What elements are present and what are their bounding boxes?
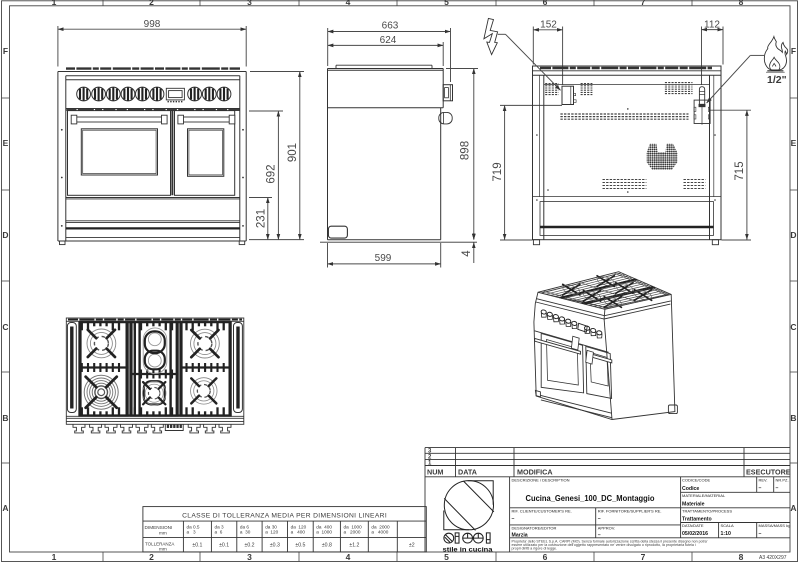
svg-text:B: B: [790, 413, 796, 423]
svg-text:1/2": 1/2": [767, 74, 787, 86]
svg-text:599: 599: [375, 253, 392, 264]
svg-text:898: 898: [459, 141, 471, 160]
svg-text:DATA/DATE: DATA/DATE: [682, 523, 704, 528]
svg-text:4: 4: [461, 250, 473, 257]
svg-text:±0.5: ±0.5: [295, 543, 305, 549]
svg-text:4: 4: [346, 0, 351, 7]
svg-text:–: –: [512, 516, 515, 522]
svg-text:REV.: REV.: [759, 477, 768, 482]
svg-text:a 6: a 6: [215, 530, 223, 535]
svg-text:3: 3: [247, 552, 252, 562]
svg-text:152: 152: [540, 20, 557, 31]
svg-text:NR.PZ.: NR.PZ.: [776, 477, 789, 482]
svg-text:Trattamento: Trattamento: [682, 516, 712, 522]
svg-text:–: –: [598, 532, 601, 538]
svg-text:stile in cucina: stile in cucina: [443, 547, 494, 554]
svg-text:MODIFICA: MODIFICA: [517, 468, 553, 477]
svg-text:112: 112: [704, 20, 720, 31]
svg-text:MATERIALE/MATERIAL: MATERIALE/MATERIAL: [682, 493, 726, 498]
svg-text:901: 901: [287, 143, 299, 162]
svg-text:a 2000: a 2000: [344, 530, 361, 535]
svg-text:715: 715: [734, 161, 746, 180]
svg-text:DATA: DATA: [458, 468, 477, 477]
svg-text:231: 231: [256, 209, 268, 228]
svg-text:±0.2: ±0.2: [244, 543, 254, 549]
svg-text:SCALA: SCALA: [721, 523, 734, 528]
svg-text:Materiale: Materiale: [682, 501, 705, 507]
svg-text:Codice: Codice: [682, 486, 699, 492]
svg-text:±2: ±2: [409, 543, 415, 549]
svg-text:NUM: NUM: [427, 468, 443, 477]
svg-text:663: 663: [382, 21, 399, 32]
svg-text:–: –: [598, 516, 601, 522]
svg-text:–: –: [776, 485, 779, 491]
svg-text:RIF. FORNITORE/SUPPLIER'S RE.: RIF. FORNITORE/SUPPLIER'S RE.: [598, 508, 662, 513]
svg-text:mm: mm: [159, 530, 167, 535]
svg-text:DESCRIZIONE / DESCRIPTION: DESCRIZIONE / DESCRIPTION: [512, 477, 570, 482]
svg-text:C: C: [2, 322, 8, 332]
svg-text:F: F: [791, 46, 796, 56]
svg-text:1: 1: [52, 552, 57, 562]
svg-text:±0.1: ±0.1: [219, 543, 229, 549]
svg-text:TRATTAMENTO/PROCESS: TRATTAMENTO/PROCESS: [682, 508, 732, 513]
svg-text:a 1000: a 1000: [316, 530, 332, 535]
svg-text:±0.1: ±0.1: [192, 543, 202, 549]
svg-text:2: 2: [149, 552, 154, 562]
svg-text:8: 8: [739, 0, 744, 7]
svg-text:Cucina_Genesi_100_DC_Montaggio: Cucina_Genesi_100_DC_Montaggio: [526, 493, 655, 503]
svg-text:Marzia: Marzia: [512, 532, 528, 538]
svg-text:APPROV.: APPROV.: [598, 525, 615, 530]
svg-text:A: A: [2, 503, 8, 513]
svg-text:624: 624: [380, 35, 397, 46]
svg-text:5: 5: [444, 0, 449, 7]
svg-text:6: 6: [543, 0, 548, 7]
svg-text:7: 7: [641, 552, 646, 562]
svg-text:a 30: a 30: [240, 530, 251, 535]
svg-text:a 4000: a 4000: [371, 530, 388, 535]
svg-text:998: 998: [144, 19, 161, 30]
svg-text:±1.2: ±1.2: [349, 543, 359, 549]
svg-text:05/02/2016: 05/02/2016: [682, 531, 708, 537]
svg-text:DESIGNATORE/EDITOR: DESIGNATORE/EDITOR: [512, 525, 557, 530]
svg-text:D: D: [790, 230, 796, 240]
svg-text:2: 2: [149, 0, 154, 7]
svg-text:A: A: [790, 503, 796, 513]
svg-text:E: E: [3, 138, 9, 148]
svg-text:mm: mm: [159, 546, 167, 551]
svg-text:RIF. CLIENTE/CUSTOMER'S RE.: RIF. CLIENTE/CUSTOMER'S RE.: [512, 508, 572, 513]
svg-text:692: 692: [266, 164, 278, 183]
svg-text:1: 1: [52, 0, 57, 7]
svg-text:propri diritti a rigore di leg: propri diritti a rigore di legge.: [512, 547, 558, 551]
svg-text:a 400: a 400: [291, 530, 306, 535]
svg-text:a 3: a 3: [187, 530, 197, 535]
svg-text:F: F: [3, 46, 8, 56]
svg-text:±0.3: ±0.3: [270, 543, 280, 549]
svg-text:CODICE/CODE: CODICE/CODE: [682, 477, 711, 482]
svg-text:CLASSE DI TOLLERANZA MEDIA PER: CLASSE DI TOLLERANZA MEDIA PER DIMENSION…: [182, 513, 387, 520]
svg-text:ESECUTORE: ESECUTORE: [746, 468, 791, 477]
svg-text:a 120: a 120: [265, 530, 278, 535]
svg-text:C: C: [790, 322, 796, 332]
svg-text:5: 5: [444, 552, 449, 562]
svg-text:8: 8: [739, 552, 744, 562]
svg-text:A3 420X297: A3 420X297: [759, 555, 787, 561]
svg-text:719: 719: [492, 162, 504, 181]
svg-text:–: –: [759, 531, 762, 537]
svg-text:DIMENSIONI: DIMENSIONI: [145, 525, 173, 530]
svg-text:7: 7: [641, 0, 646, 7]
svg-text:±0.8: ±0.8: [322, 543, 332, 549]
svg-text:B: B: [2, 413, 8, 423]
svg-text:3: 3: [247, 0, 252, 7]
svg-text:–: –: [759, 485, 762, 491]
svg-text:D: D: [2, 230, 8, 240]
svg-text:E: E: [791, 138, 797, 148]
svg-text:6: 6: [543, 552, 548, 562]
svg-text:1:10: 1:10: [721, 531, 731, 537]
svg-text:4: 4: [346, 552, 351, 562]
svg-text:MASSA/MASS kg: MASSA/MASS kg: [759, 523, 791, 528]
